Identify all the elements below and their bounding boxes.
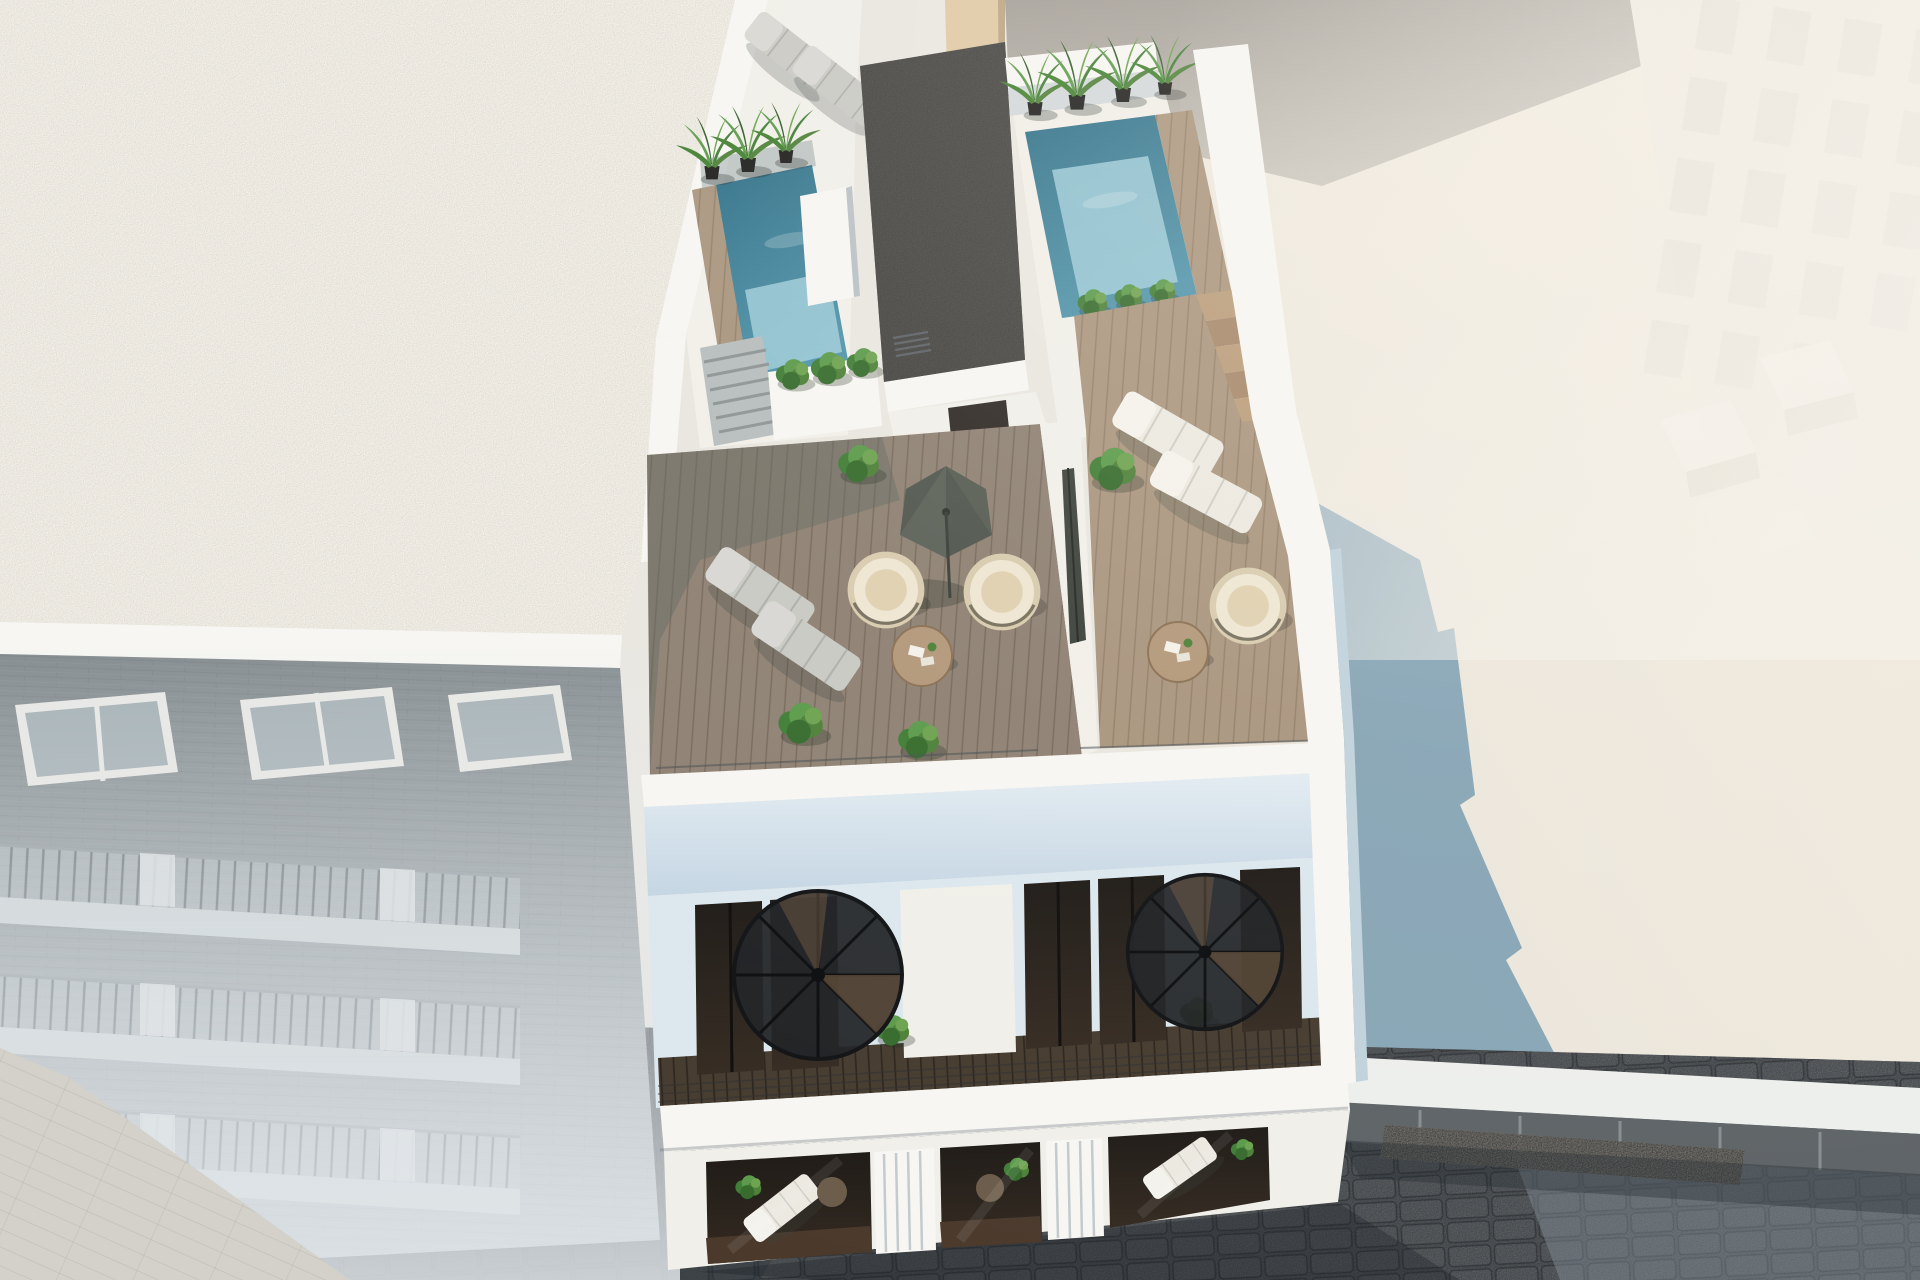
architectural-render [0,0,1920,1280]
render-canvas [0,0,1920,1280]
sunlight-wash [0,0,1920,1280]
